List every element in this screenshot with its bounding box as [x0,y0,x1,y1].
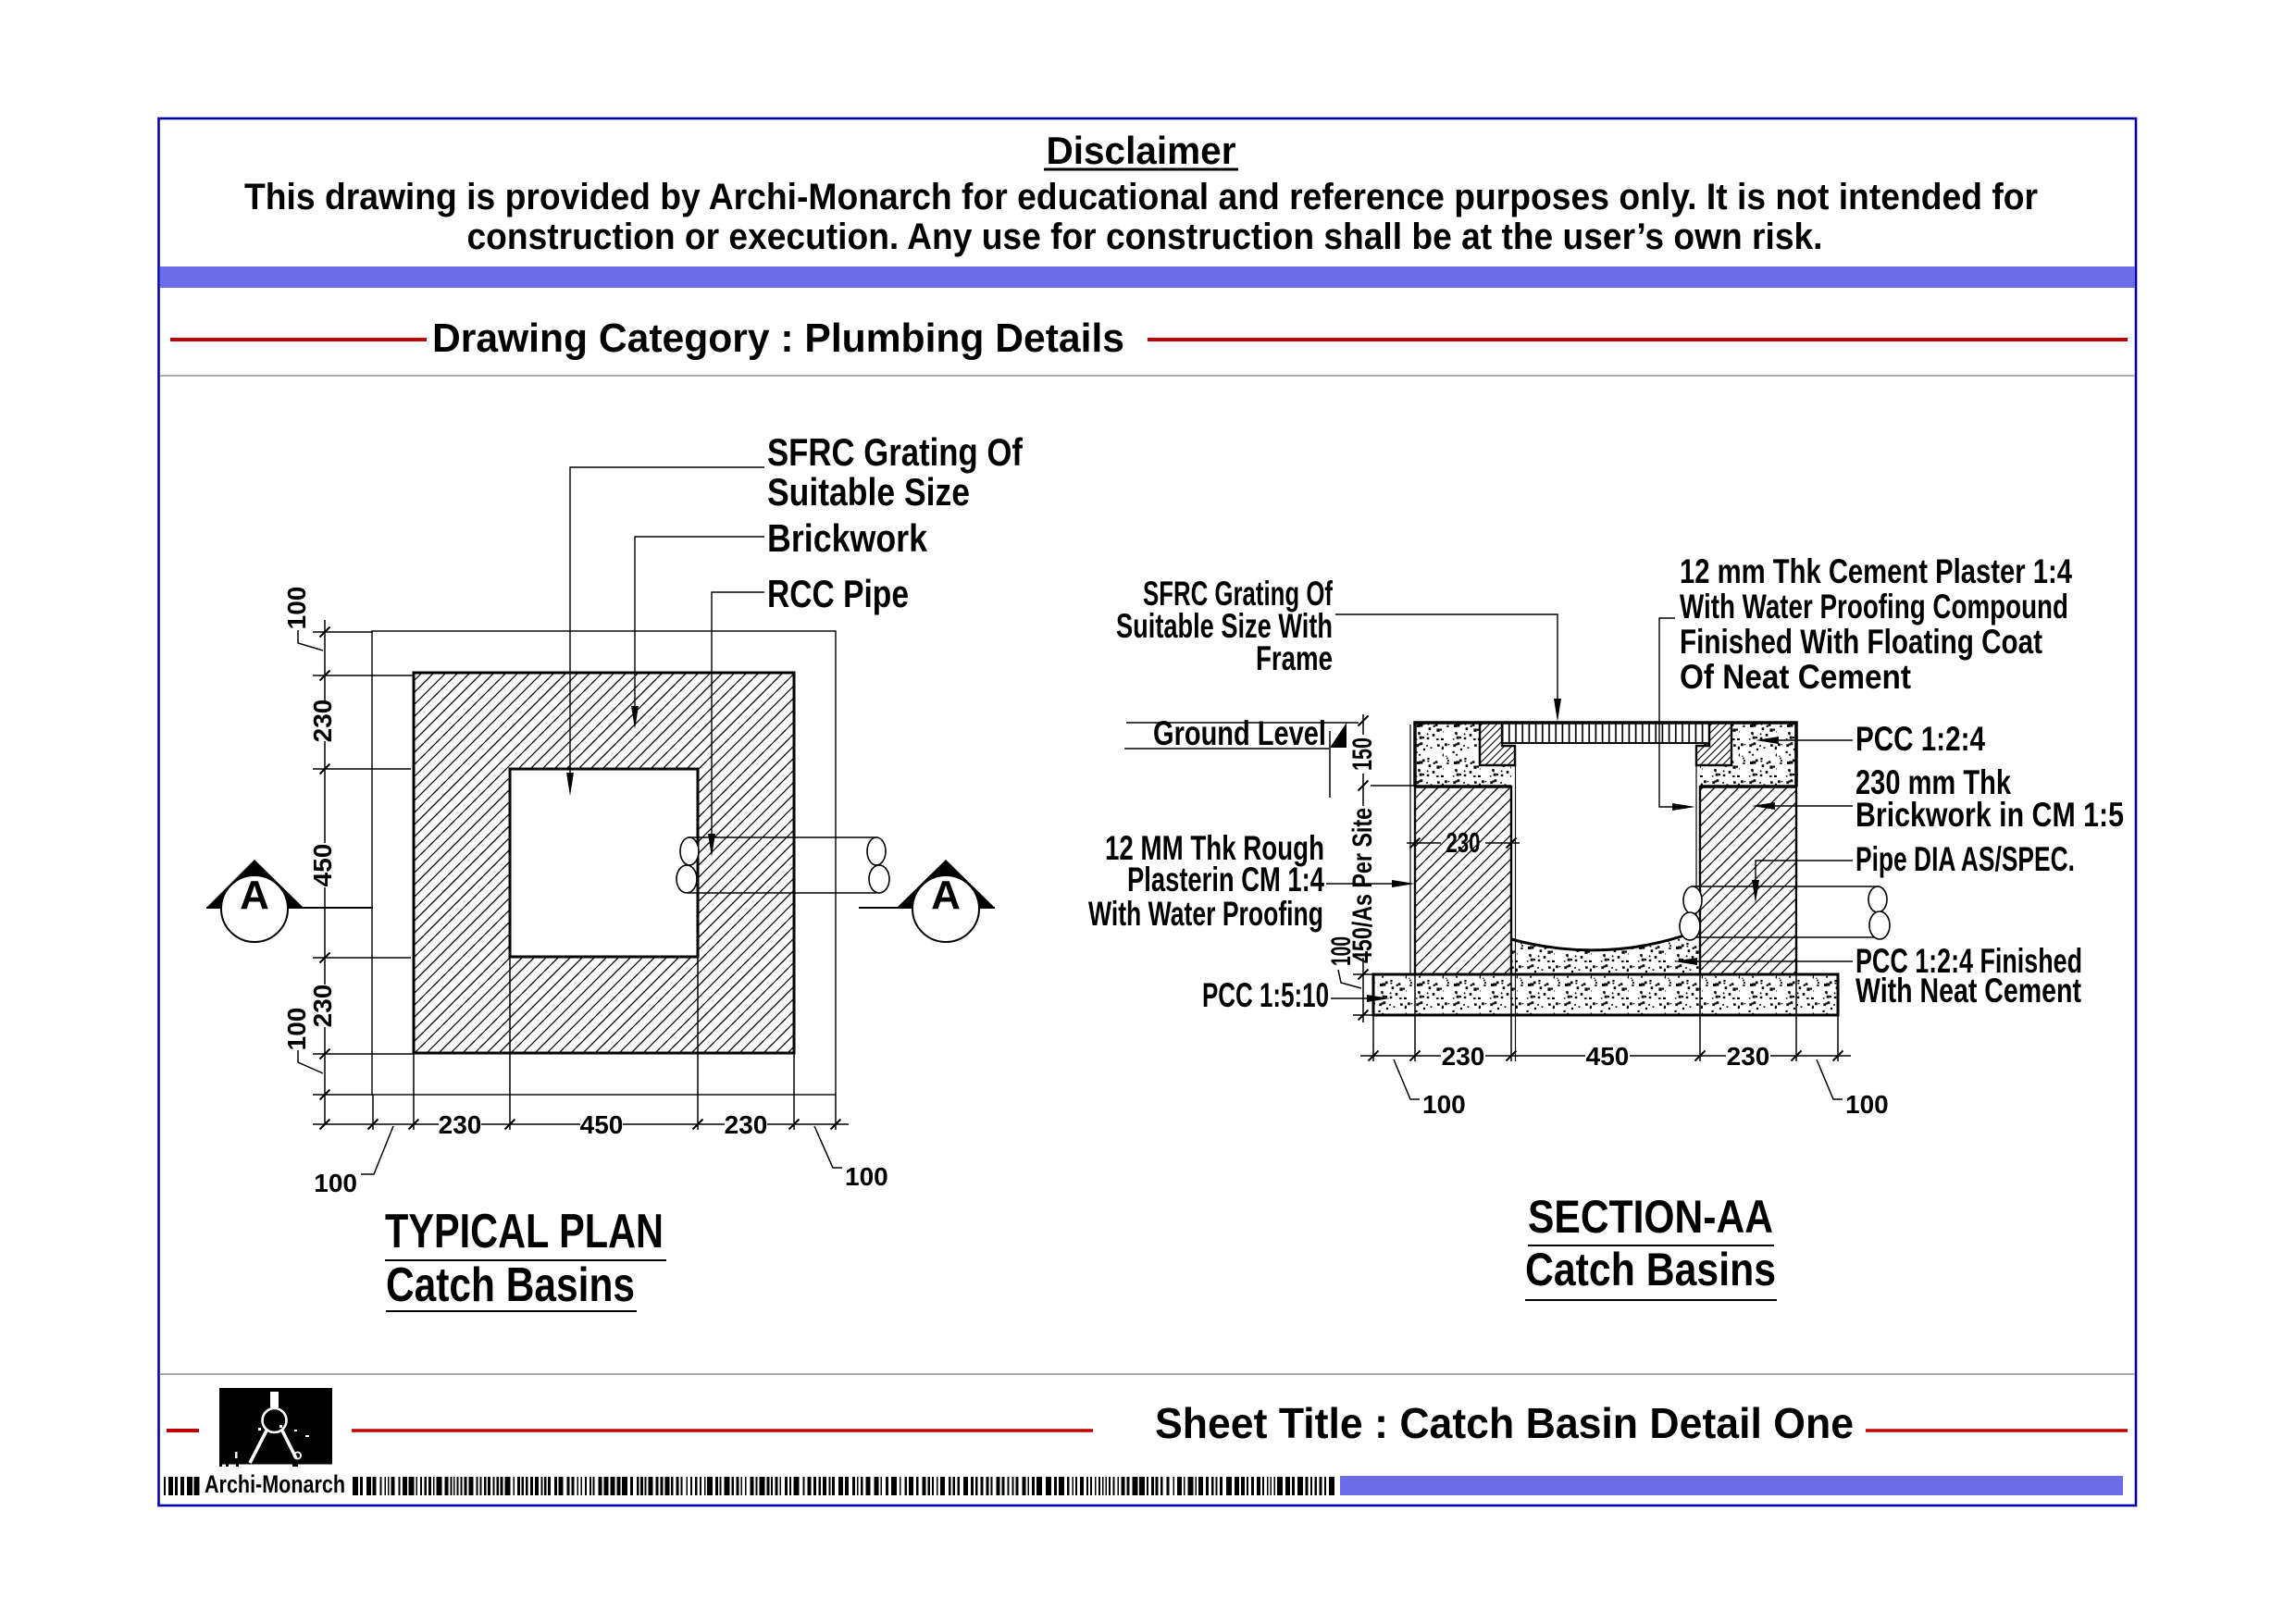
svg-text:450: 450 [1586,1042,1630,1071]
svg-text:Frame: Frame [1256,639,1333,677]
svg-text:100: 100 [282,587,311,630]
svg-text:With Water Proofing Compound: With Water Proofing Compound [1680,588,2068,626]
svg-text:With Neat Cement: With Neat Cement [1855,972,2081,1010]
svg-text:100: 100 [314,1169,357,1197]
svg-text:100: 100 [1422,1090,1466,1119]
svg-text:230: 230 [1442,1042,1485,1071]
svg-text:Of Neat Cement: Of Neat Cement [1680,658,1911,696]
svg-text:230: 230 [1446,826,1481,859]
svg-text:Finished With Floating Coat: Finished With Floating Coat [1680,623,2042,661]
svg-text:Suitable Size: Suitable Size [767,470,970,514]
svg-text:230: 230 [725,1110,768,1139]
svg-text:RCC Pipe: RCC Pipe [767,572,909,615]
svg-text:230: 230 [308,700,337,743]
svg-text:A: A [931,873,961,918]
svg-text:construction or execution. Any: construction or execution. Any use for c… [467,217,1823,257]
svg-text:TYPICAL PLAN: TYPICAL PLAN [385,1205,664,1258]
svg-text:PCC 1:2:4: PCC 1:2:4 [1855,720,1985,758]
svg-text:450: 450 [308,844,337,887]
svg-text:Brickwork in CM 1:5: Brickwork in CM 1:5 [1855,796,2124,834]
svg-text:Ground Level: Ground Level [1153,714,1326,752]
svg-text:100: 100 [1845,1090,1889,1119]
svg-text:Disclaimer: Disclaimer [1047,129,1236,172]
svg-text:Pipe DIA AS/SPEC.: Pipe DIA AS/SPEC. [1855,840,2075,878]
svg-text:Archi-Monarch: Archi-Monarch [205,1470,345,1498]
svg-text:A: A [240,873,269,918]
svg-text:100: 100 [282,1008,311,1051]
svg-text:Catch Basins: Catch Basins [1525,1244,1776,1295]
svg-text:Sheet Title : Catch Basin Deta: Sheet Title : Catch Basin Detail One [1155,1399,1854,1447]
svg-text:Catch Basins: Catch Basins [386,1258,635,1312]
svg-text:With Water Proofing: With Water Proofing [1088,895,1323,933]
svg-text:SECTION-AA: SECTION-AA [1528,1191,1773,1243]
svg-text:230: 230 [439,1110,482,1139]
svg-text:Plasterin CM 1:4: Plasterin CM 1:4 [1127,861,1324,898]
svg-text:150: 150 [1347,737,1378,771]
svg-text:Drawing Category : Plumbing De: Drawing Category : Plumbing Details [432,316,1124,361]
svg-text:Brickwork: Brickwork [767,516,928,560]
svg-text:100: 100 [845,1162,888,1191]
svg-text:230: 230 [308,985,337,1028]
svg-text:PCC 1:5:10: PCC 1:5:10 [1202,976,1329,1014]
svg-text:100: 100 [1326,936,1357,966]
svg-text:230: 230 [1727,1042,1770,1071]
svg-text:12 mm Thk Cement Plaster 1:4: 12 mm Thk Cement Plaster 1:4 [1680,552,2072,590]
svg-text:This drawing is provided by Ar: This drawing is provided by Archi-Monarc… [244,177,2038,217]
svg-text:450: 450 [580,1110,624,1139]
svg-text:SFRC Grating Of: SFRC Grating Of [767,430,1024,474]
